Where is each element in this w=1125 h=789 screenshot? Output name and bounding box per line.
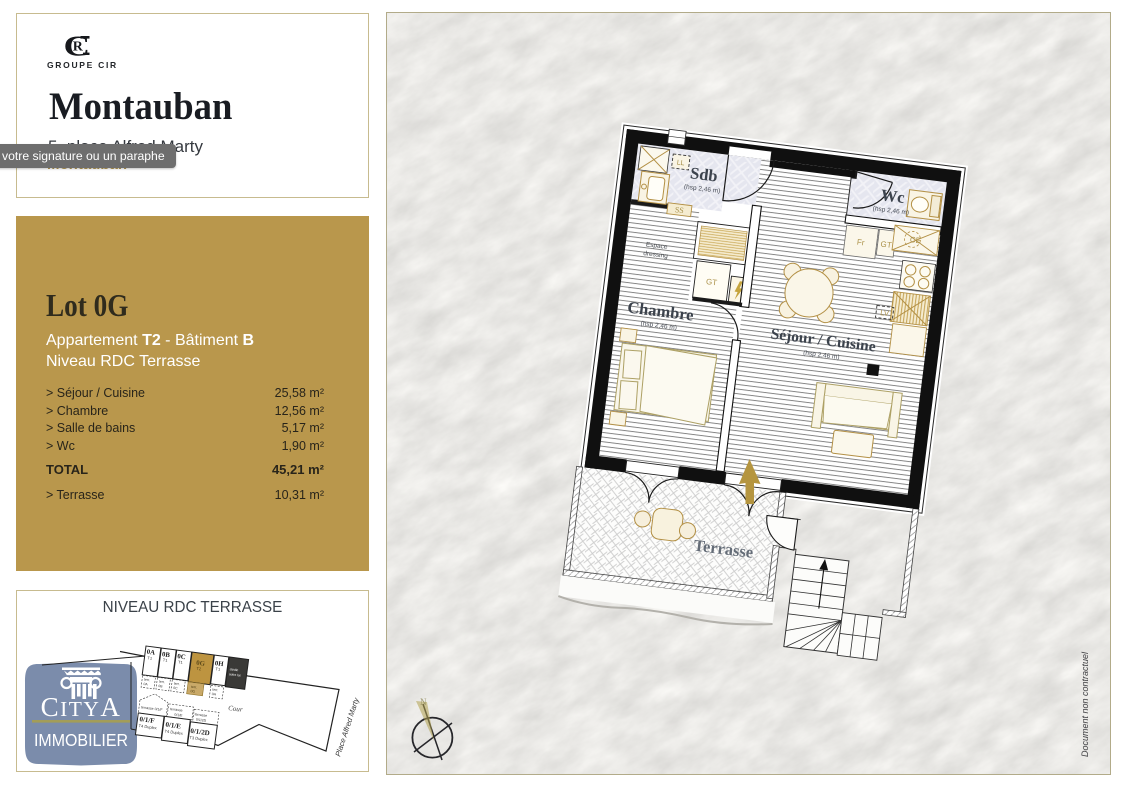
svg-text:Sdb: Sdb: [689, 163, 719, 185]
svg-text:Wc: Wc: [880, 185, 906, 207]
svg-text:Fr: Fr: [856, 238, 865, 248]
svg-text:SS: SS: [674, 205, 684, 215]
svg-text:N: N: [420, 697, 427, 707]
svg-text:LL: LL: [676, 159, 685, 167]
svg-text:Document non contractuel: Document non contractuel: [1080, 651, 1090, 757]
svg-text:LV: LV: [880, 308, 890, 318]
svg-text:GT: GT: [880, 239, 892, 249]
svg-text:R: R: [73, 40, 84, 55]
svg-text:CE: CE: [909, 235, 921, 245]
svg-text:GT: GT: [706, 277, 718, 287]
